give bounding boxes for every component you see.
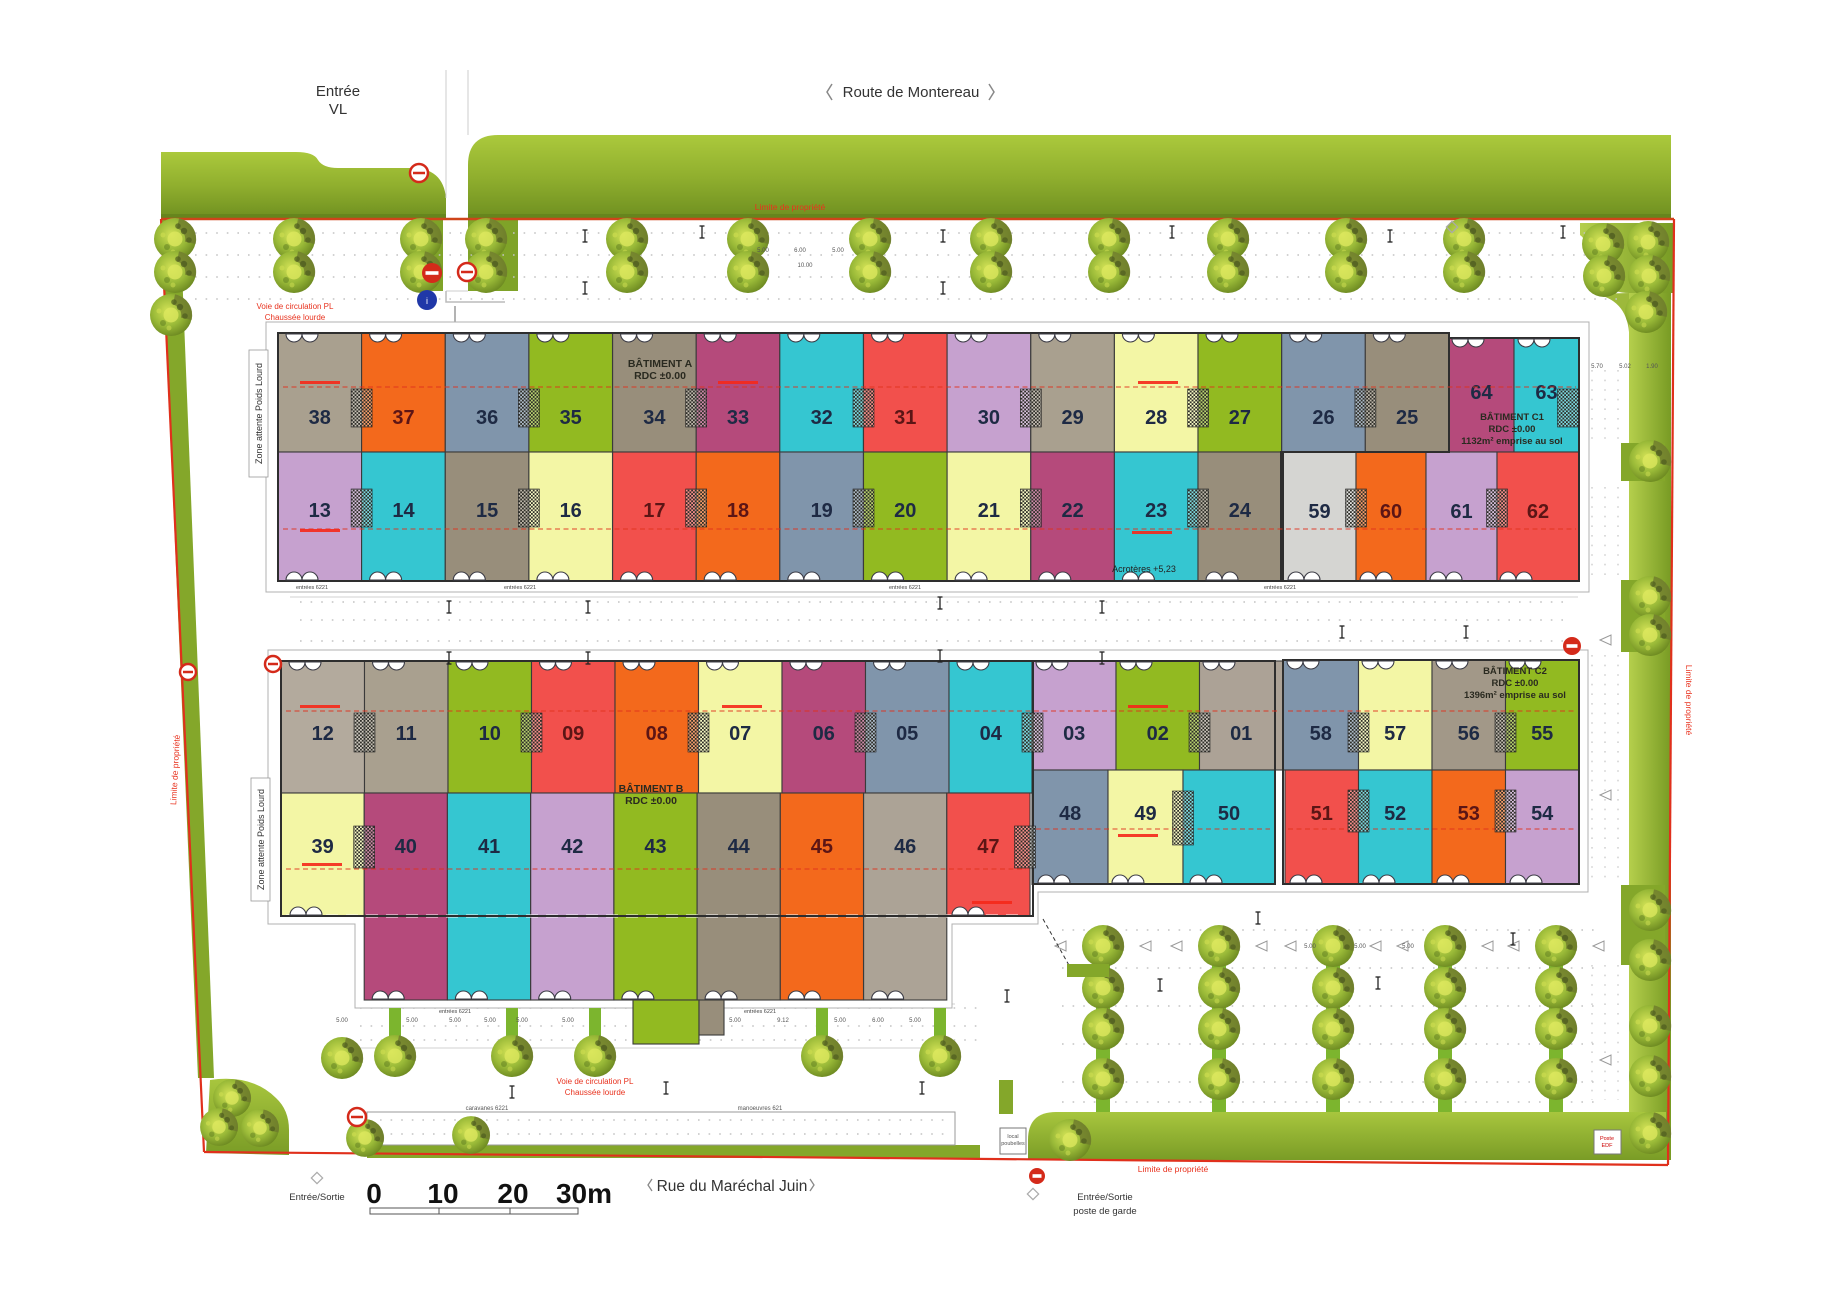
svg-text:5.00: 5.00 [1402,944,1414,950]
svg-text:5.00: 5.00 [832,248,844,254]
svg-text:23: 23 [1145,500,1167,522]
svg-text:14: 14 [392,500,415,522]
svg-text:Poste: Poste [1600,1136,1614,1142]
svg-text:03: 03 [1063,723,1085,745]
svg-text:5.00: 5.00 [516,1018,528,1024]
svg-text:42: 42 [561,836,583,858]
svg-text:35: 35 [560,407,582,429]
svg-text:34: 34 [643,407,666,429]
svg-text:02: 02 [1147,723,1169,745]
svg-text:Voie de circulation PL: Voie de circulation PL [557,1077,634,1086]
svg-text:i: i [426,296,428,306]
svg-text:49: 49 [1134,803,1156,825]
svg-text:Limite de propriété: Limite de propriété [1138,1164,1209,1174]
svg-text:21: 21 [978,500,1000,522]
svg-text:Entrée/Sortie: Entrée/Sortie [1077,1192,1132,1203]
svg-text:Voie de circulation PL: Voie de circulation PL [257,302,334,311]
svg-text:20: 20 [497,1178,528,1209]
svg-text:64: 64 [1470,382,1493,404]
svg-text:poubelles: poubelles [1001,1141,1025,1147]
svg-text:Chaussée lourde: Chaussée lourde [265,313,326,322]
svg-text:BÂTIMENT C2: BÂTIMENT C2 [1483,665,1547,677]
svg-text:40: 40 [395,836,417,858]
svg-text:30: 30 [978,407,1000,429]
svg-text:RDC ±0.00: RDC ±0.00 [625,795,677,807]
svg-text:07: 07 [729,723,751,745]
svg-text:entrées 6221: entrées 6221 [504,585,536,591]
svg-text:EDF: EDF [1602,1143,1614,1149]
svg-text:Entrée: Entrée [316,83,360,100]
svg-text:5.00: 5.00 [1354,944,1366,950]
svg-text:1.90: 1.90 [1646,364,1658,370]
svg-text:59: 59 [1308,501,1330,523]
svg-text:Zone attente Poids Lourd: Zone attente Poids Lourd [256,789,266,890]
svg-text:5.00: 5.00 [909,1018,921,1024]
svg-text:43: 43 [644,836,666,858]
svg-text:31: 31 [894,407,916,429]
svg-text:28: 28 [1145,407,1167,429]
svg-text:63: 63 [1535,382,1557,404]
svg-text:entrées 6221: entrées 6221 [744,1009,776,1015]
svg-text:entrées 6221: entrées 6221 [889,585,921,591]
svg-text:5.00: 5.00 [562,1018,574,1024]
svg-text:BÂTIMENT A: BÂTIMENT A [628,357,693,370]
svg-text:08: 08 [646,723,668,745]
svg-text:51: 51 [1311,803,1333,825]
svg-text:12: 12 [312,723,334,745]
svg-text:52: 52 [1384,803,1406,825]
svg-text:5.70: 5.70 [1591,364,1603,370]
svg-text:24: 24 [1229,500,1252,522]
svg-text:6.00: 6.00 [872,1018,884,1024]
svg-text:6.00: 6.00 [794,248,806,254]
svg-text:11: 11 [396,723,417,745]
svg-text:47: 47 [977,836,999,858]
svg-text:46: 46 [894,836,916,858]
svg-text:Acrotères +5,23: Acrotères +5,23 [1112,564,1176,574]
svg-text:Route de Montereau: Route de Montereau [843,84,980,101]
svg-text:Rue du Maréchal Juin: Rue du Maréchal Juin [657,1178,808,1195]
svg-text:30m: 30m [556,1178,612,1209]
svg-text:29: 29 [1061,407,1083,429]
svg-text:5.00: 5.00 [484,1018,496,1024]
svg-text:55: 55 [1531,723,1553,745]
svg-text:Zone attente Poids Lourd: Zone attente Poids Lourd [254,363,264,464]
svg-text:09: 09 [562,723,584,745]
svg-text:manoeuvres 621: manoeuvres 621 [738,1106,783,1112]
svg-text:RDC ±0.00: RDC ±0.00 [634,370,686,382]
svg-text:60: 60 [1380,501,1402,523]
svg-text:BÂTIMENT C1: BÂTIMENT C1 [1480,411,1545,423]
svg-text:Entrée/Sortie: Entrée/Sortie [289,1192,344,1203]
svg-text:61: 61 [1450,501,1472,523]
svg-text:10.00: 10.00 [797,263,813,269]
svg-text:48: 48 [1059,803,1081,825]
svg-text:22: 22 [1061,500,1083,522]
svg-text:5.00: 5.00 [449,1018,461,1024]
svg-text:37: 37 [392,407,414,429]
svg-text:04: 04 [980,723,1003,745]
svg-text:39: 39 [311,836,333,858]
svg-text:13: 13 [309,500,331,522]
svg-text:10: 10 [479,723,501,745]
svg-text:33: 33 [727,407,749,429]
svg-text:58: 58 [1310,723,1332,745]
svg-text:27: 27 [1229,407,1251,429]
svg-text:entrées 6221: entrées 6221 [296,585,328,591]
svg-text:50: 50 [1218,803,1240,825]
svg-text:local: local [1007,1134,1018,1140]
svg-text:44: 44 [728,836,751,858]
svg-text:06: 06 [813,723,835,745]
svg-text:RDC ±0.00: RDC ±0.00 [1492,678,1539,689]
svg-text:0: 0 [366,1178,382,1209]
svg-text:Chaussée lourde: Chaussée lourde [565,1088,626,1097]
svg-text:1396m² emprise au sol: 1396m² emprise au sol [1464,690,1566,701]
svg-text:entrées 6221: entrées 6221 [1264,585,1296,591]
svg-text:VL: VL [329,101,347,118]
svg-text:57: 57 [1384,723,1406,745]
svg-text:RDC ±0.00: RDC ±0.00 [1489,424,1536,435]
svg-text:5.00: 5.00 [406,1018,418,1024]
svg-text:05: 05 [896,723,918,745]
svg-text:Limite de propriété: Limite de propriété [1684,665,1694,736]
svg-text:entrées 6221: entrées 6221 [439,1009,471,1015]
svg-text:45: 45 [811,836,833,858]
svg-text:18: 18 [727,500,749,522]
svg-text:41: 41 [478,836,500,858]
svg-text:17: 17 [643,500,665,522]
svg-text:53: 53 [1458,803,1480,825]
svg-text:10: 10 [427,1178,458,1209]
svg-text:56: 56 [1458,723,1480,745]
svg-text:9.12: 9.12 [777,1018,789,1024]
svg-text:25: 25 [1396,407,1418,429]
svg-text:poste de garde: poste de garde [1073,1206,1136,1217]
svg-text:62: 62 [1527,501,1549,523]
svg-text:1132m² emprise au sol: 1132m² emprise au sol [1461,436,1562,447]
svg-text:38: 38 [309,407,331,429]
svg-text:15: 15 [476,500,498,522]
svg-text:54: 54 [1531,803,1554,825]
svg-text:16: 16 [560,500,582,522]
svg-text:26: 26 [1312,407,1334,429]
svg-text:5.00: 5.00 [729,1018,741,1024]
svg-text:01: 01 [1230,723,1252,745]
svg-text:20: 20 [894,500,916,522]
svg-text:5.00: 5.00 [834,1018,846,1024]
svg-text:36: 36 [476,407,498,429]
svg-text:5.00: 5.00 [336,1018,348,1024]
svg-text:caravanes 6221: caravanes 6221 [466,1106,509,1112]
svg-text:5.00: 5.00 [1304,944,1316,950]
svg-text:5.02: 5.02 [1619,364,1631,370]
svg-text:BÂTIMENT B: BÂTIMENT B [619,782,684,795]
svg-text:32: 32 [811,407,833,429]
svg-text:Limite de propriété: Limite de propriété [755,202,826,212]
svg-text:5.00: 5.00 [757,248,769,254]
svg-text:19: 19 [811,500,833,522]
